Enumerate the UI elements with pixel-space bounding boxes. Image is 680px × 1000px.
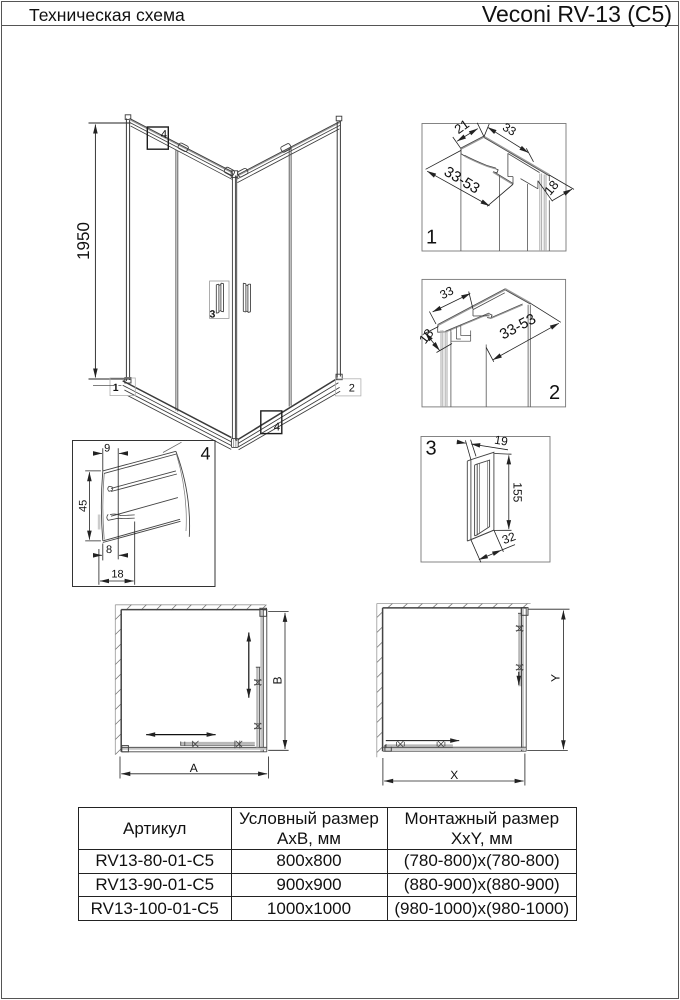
- svg-text:18: 18: [111, 569, 123, 581]
- svg-text:155: 155: [510, 482, 524, 502]
- svg-text:1: 1: [113, 382, 119, 394]
- svg-text:4: 4: [161, 129, 168, 141]
- svg-text:33: 33: [438, 283, 457, 302]
- svg-text:Y: Y: [549, 674, 563, 682]
- svg-text:2: 2: [349, 382, 355, 394]
- svg-text:4: 4: [201, 444, 211, 464]
- svg-text:2: 2: [549, 382, 560, 404]
- svg-text:3: 3: [426, 438, 437, 460]
- svg-text:A: A: [190, 761, 198, 775]
- svg-text:4: 4: [274, 422, 281, 434]
- svg-text:33: 33: [500, 120, 519, 139]
- svg-text:3: 3: [209, 308, 215, 320]
- svg-text:33-53: 33-53: [497, 310, 539, 343]
- svg-text:33-53: 33-53: [441, 163, 483, 197]
- svg-text:9: 9: [104, 443, 110, 455]
- svg-text:X: X: [450, 768, 458, 782]
- svg-text:32: 32: [500, 529, 518, 547]
- svg-text:8: 8: [106, 544, 112, 556]
- svg-text:B: B: [271, 676, 285, 684]
- svg-text:1: 1: [426, 227, 437, 249]
- svg-text:45: 45: [77, 500, 89, 512]
- svg-text:19: 19: [493, 433, 509, 449]
- svg-text:1950: 1950: [74, 222, 93, 260]
